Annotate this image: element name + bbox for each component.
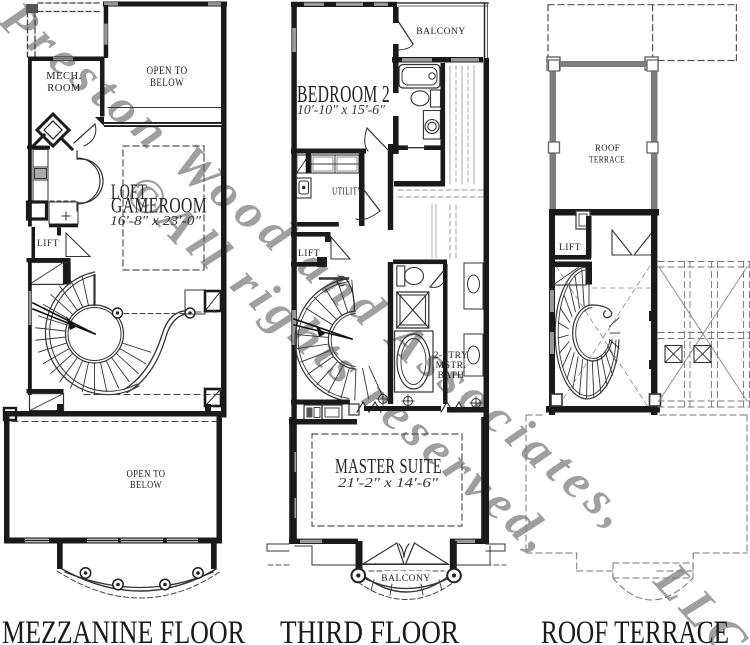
svg-text:MSTR.: MSTR. [436, 361, 467, 371]
svg-text:THIRD FLOOR: THIRD FLOOR [280, 615, 459, 645]
svg-text:21'-2" x 14'-6": 21'-2" x 14'-6" [338, 476, 438, 491]
svg-text:BALCONY: BALCONY [416, 27, 465, 37]
svg-text:ROOF TERRACE: ROOF TERRACE [541, 615, 729, 645]
svg-text:UTILITY: UTILITY [332, 187, 363, 198]
svg-text:LIFT: LIFT [559, 243, 581, 253]
svg-text:BELOW: BELOW [150, 77, 184, 89]
svg-text:BATH: BATH [438, 371, 465, 381]
svg-text:LIFT: LIFT [298, 249, 320, 259]
svg-text:MECH.: MECH. [46, 71, 81, 82]
svg-text:MASTER SUITE: MASTER SUITE [335, 454, 442, 478]
svg-text:ROOF: ROOF [595, 144, 620, 154]
svg-text:10'-10" x 15'-6": 10'-10" x 15'-6" [297, 103, 385, 118]
svg-text:2-STRY: 2-STRY [434, 351, 469, 361]
svg-text:LIFT: LIFT [37, 239, 59, 249]
svg-text:BELOW: BELOW [130, 480, 162, 491]
svg-text:ROOM: ROOM [47, 83, 81, 94]
svg-text:MEZZANINE FLOOR: MEZZANINE FLOOR [2, 615, 245, 645]
svg-text:BALCONY: BALCONY [381, 574, 430, 584]
svg-text:16'-8" x 23'-0": 16'-8" x 23'-0" [110, 213, 201, 228]
svg-text:OPEN TO: OPEN TO [147, 65, 188, 77]
svg-text:OPEN TO: OPEN TO [127, 469, 166, 480]
svg-text:TERRACE: TERRACE [589, 156, 625, 166]
